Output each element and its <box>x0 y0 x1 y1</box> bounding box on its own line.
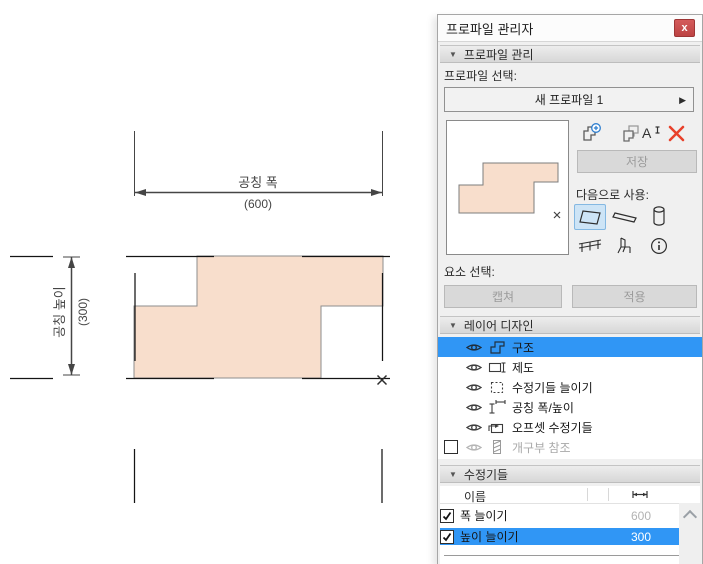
column-separator <box>587 488 588 501</box>
section-profile-manage-label: 프로파일 관리 <box>464 46 534 63</box>
layer-row-nominal-size[interactable]: 공칭 폭/높이 <box>438 397 702 417</box>
profile-preview-image <box>447 121 568 254</box>
panel-titlebar[interactable]: 프로파일 관리자 x <box>438 15 702 42</box>
visibility-eye-icon[interactable] <box>463 442 485 453</box>
structure-layer-icon <box>485 340 509 355</box>
layer-label: 구조 <box>512 339 534 356</box>
layer-checkbox[interactable] <box>444 440 463 454</box>
modifier-name: 폭 늘이기 <box>460 507 508 524</box>
height-dim-value: (300) <box>76 298 90 326</box>
apply-button[interactable]: 적용 <box>572 285 697 308</box>
modifier-row-height-stretch[interactable]: 높이 늘이기 300 <box>440 528 679 545</box>
section-layer-design[interactable]: ▼ 레이어 디자인 <box>440 316 700 334</box>
nominal-size-layer-icon <box>485 399 509 415</box>
width-dim-label: 공칭 폭 <box>238 175 278 190</box>
section-modifiers[interactable]: ▼ 수정기들 <box>440 465 700 483</box>
chair-icon <box>615 236 635 256</box>
height-arrow-bottom <box>68 364 75 375</box>
modifier-value[interactable]: 600 <box>631 509 651 523</box>
width-dim-value: (600) <box>244 197 272 211</box>
use-as-beam-button[interactable] <box>609 204 641 230</box>
modifier-table: 이름 폭 늘이기 600 높이 늘이기 30 <box>440 486 700 564</box>
delete-profile-button[interactable] <box>665 122 689 146</box>
duplicate-profile-icon <box>620 122 642 144</box>
preview-origin-marker <box>554 212 560 218</box>
save-button[interactable]: 저장 <box>577 150 697 173</box>
beam-icon <box>612 207 638 227</box>
visibility-eye-icon[interactable] <box>463 422 485 433</box>
preview-shape <box>459 163 558 213</box>
new-profile-icon <box>580 122 602 144</box>
railing-icon <box>577 237 603 255</box>
use-as-column-button[interactable] <box>643 204 675 230</box>
name-column-header: 이름 <box>464 488 486 505</box>
profile-select-dropdown[interactable]: 새 프로파일 1 ▶ <box>444 87 694 112</box>
checkbox-checked[interactable] <box>440 509 454 523</box>
profile-info-button[interactable] <box>643 234 675 258</box>
new-profile-button[interactable] <box>579 122 603 146</box>
height-arrow-top <box>68 257 75 268</box>
stretch-modifiers-layer-icon <box>485 380 509 395</box>
svg-text:A: A <box>642 125 652 141</box>
visibility-eye-icon[interactable] <box>463 402 485 413</box>
use-as-railing-button[interactable] <box>574 234 606 258</box>
column-icon <box>651 205 667 229</box>
profile-select-label: 프로파일 선택: <box>444 67 517 84</box>
layer-row-offset-modifiers[interactable]: 오프셋 수정기들 <box>438 417 702 437</box>
capture-button[interactable]: 캡쳐 <box>444 285 562 308</box>
visibility-eye-icon[interactable] <box>463 382 485 393</box>
use-as-object-button[interactable] <box>609 234 641 258</box>
combo-arrow-icon: ▶ <box>679 95 686 106</box>
layer-row-drafting[interactable]: 제도 <box>438 357 702 377</box>
element-select-label: 요소 선택: <box>444 263 495 280</box>
column-separator <box>608 488 609 501</box>
wall-icon <box>577 207 603 227</box>
app-window: 공칭 폭 (600) 공칭 높이 (300) <box>0 0 703 564</box>
layer-label: 공칭 폭/높이 <box>512 399 574 416</box>
origin-marker <box>378 376 387 385</box>
offset-modifiers-layer-icon <box>485 419 509 435</box>
rename-profile-button[interactable]: A <box>640 122 664 146</box>
profile-shape[interactable] <box>134 256 383 378</box>
layer-label: 오프셋 수정기들 <box>512 419 593 436</box>
info-icon <box>650 237 668 255</box>
profile-preview <box>446 120 569 255</box>
layer-row-opening-reference[interactable]: 개구부 참조 <box>438 437 702 457</box>
layer-list: 구조 제도 수정기들 늘이기 <box>438 337 702 459</box>
nominal-height-dimension: 공칭 높이 (300) <box>52 257 90 375</box>
use-as-wall-button[interactable] <box>574 204 606 230</box>
section-profile-manage[interactable]: ▼ 프로파일 관리 <box>440 45 700 63</box>
scroll-up-icon[interactable] <box>683 510 697 524</box>
modifier-table-header: 이름 <box>440 486 679 504</box>
panel-title: 프로파일 관리자 <box>446 19 533 38</box>
drafting-layer-icon <box>485 360 509 375</box>
opening-reference-layer-icon <box>485 439 509 455</box>
layer-label: 개구부 참조 <box>512 439 571 456</box>
checkbox-unchecked[interactable] <box>444 440 458 454</box>
layer-row-structure[interactable]: 구조 <box>438 337 702 357</box>
layer-label: 수정기들 늘이기 <box>512 379 593 396</box>
modifier-name: 높이 늘이기 <box>460 528 519 545</box>
dimension-column-icon <box>631 489 649 500</box>
modifier-row-width-stretch[interactable]: 폭 늘이기 600 <box>440 506 679 525</box>
layer-label: 제도 <box>512 359 534 376</box>
close-button[interactable]: x <box>674 19 695 37</box>
table-separator <box>444 555 680 556</box>
nominal-width-dimension: 공칭 폭 (600) <box>135 131 383 211</box>
use-as-label: 다음으로 사용: <box>576 186 649 203</box>
delete-profile-icon <box>666 122 688 144</box>
visibility-eye-icon[interactable] <box>463 362 485 373</box>
collapse-icon: ▼ <box>449 321 457 330</box>
collapse-icon: ▼ <box>449 50 457 59</box>
profile-manager-panel: 프로파일 관리자 x ▼ 프로파일 관리 프로파일 선택: 새 프로파일 1 ▶ <box>437 14 703 564</box>
width-arrow-right <box>371 189 382 196</box>
width-arrow-left <box>135 189 146 196</box>
rename-profile-icon: A <box>641 122 663 144</box>
modifier-value[interactable]: 300 <box>631 530 651 544</box>
visibility-eye-icon[interactable] <box>463 342 485 353</box>
checkbox-checked[interactable] <box>440 530 454 544</box>
layer-row-stretch-modifiers[interactable]: 수정기들 늘이기 <box>438 377 702 397</box>
table-scrollbar[interactable] <box>679 503 701 564</box>
height-dim-label: 공칭 높이 <box>52 286 67 337</box>
profile-name: 새 프로파일 1 <box>535 91 604 108</box>
section-layer-design-label: 레이어 디자인 <box>464 317 534 334</box>
collapse-icon: ▼ <box>449 470 457 479</box>
section-modifiers-label: 수정기들 <box>464 466 508 483</box>
drawing-canvas[interactable]: 공칭 폭 (600) 공칭 높이 (300) <box>0 0 437 564</box>
